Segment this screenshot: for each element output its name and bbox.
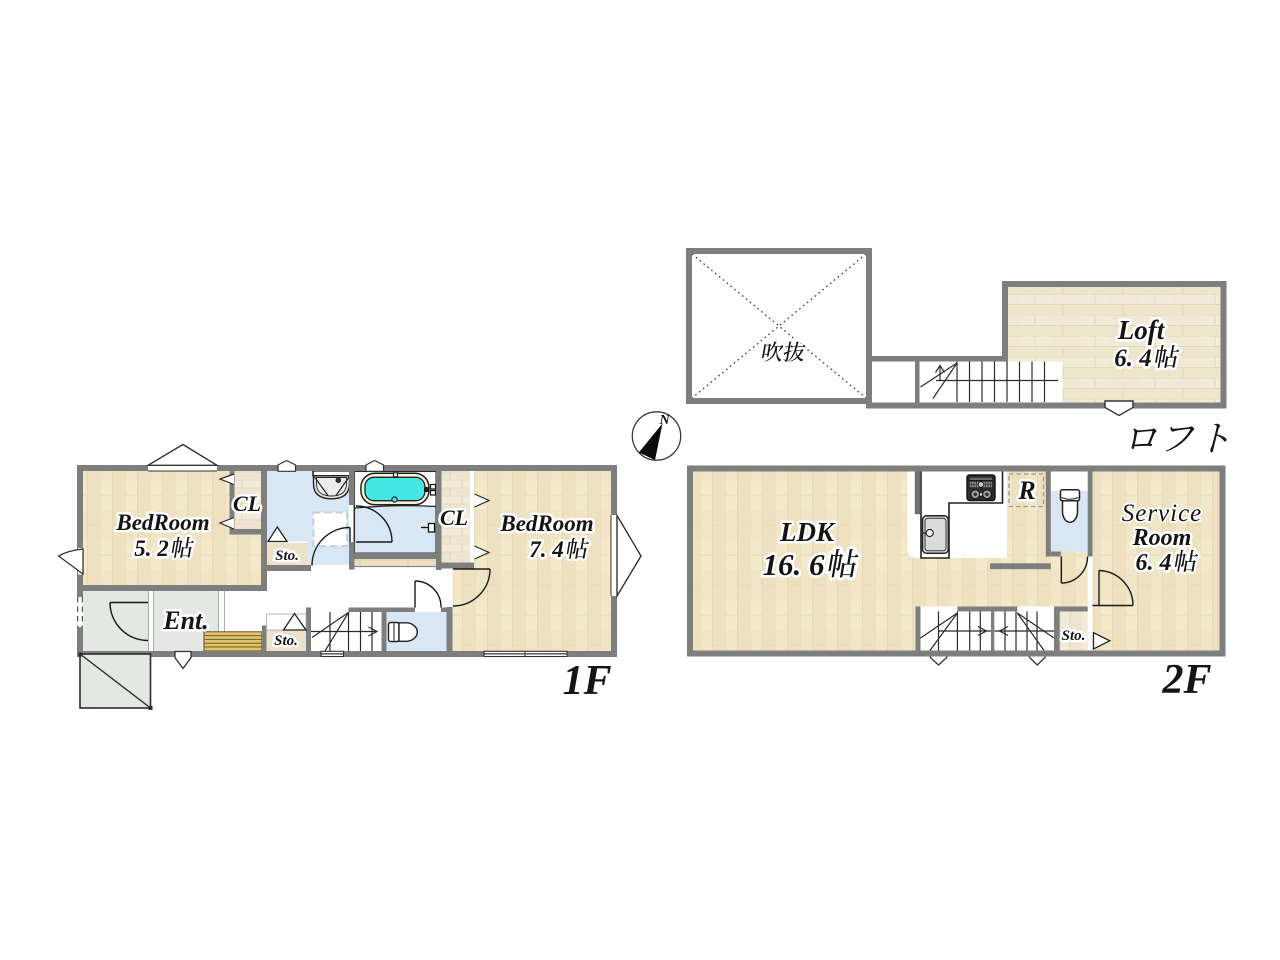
svg-text:R: R [1017, 476, 1035, 505]
svg-text:Sto.: Sto. [1062, 628, 1086, 644]
svg-text:Service: Service [1122, 500, 1203, 527]
svg-text:CL: CL [440, 505, 468, 530]
svg-text:6. 4: 6. 4 [1114, 345, 1152, 372]
svg-text:Loft: Loft [1117, 315, 1166, 345]
svg-text:1F: 1F [562, 658, 611, 704]
svg-text:5. 2: 5. 2 [134, 536, 169, 561]
svg-text:BedRoom: BedRoom [499, 511, 593, 536]
svg-text:7. 4: 7. 4 [529, 537, 564, 562]
svg-text:N: N [658, 413, 670, 428]
svg-text:Sto.: Sto. [275, 548, 299, 564]
svg-text:CL: CL [233, 491, 261, 516]
svg-text:Ent.: Ent. [162, 606, 209, 635]
svg-text:LDK: LDK [779, 517, 836, 547]
svg-text:6. 4: 6. 4 [1136, 550, 1172, 576]
svg-text:Sto.: Sto. [274, 633, 298, 649]
svg-text:16. 6: 16. 6 [763, 547, 826, 582]
svg-text:BedRoom: BedRoom [115, 510, 209, 535]
svg-text:Room: Room [1132, 525, 1192, 551]
svg-text:2F: 2F [1161, 657, 1211, 703]
